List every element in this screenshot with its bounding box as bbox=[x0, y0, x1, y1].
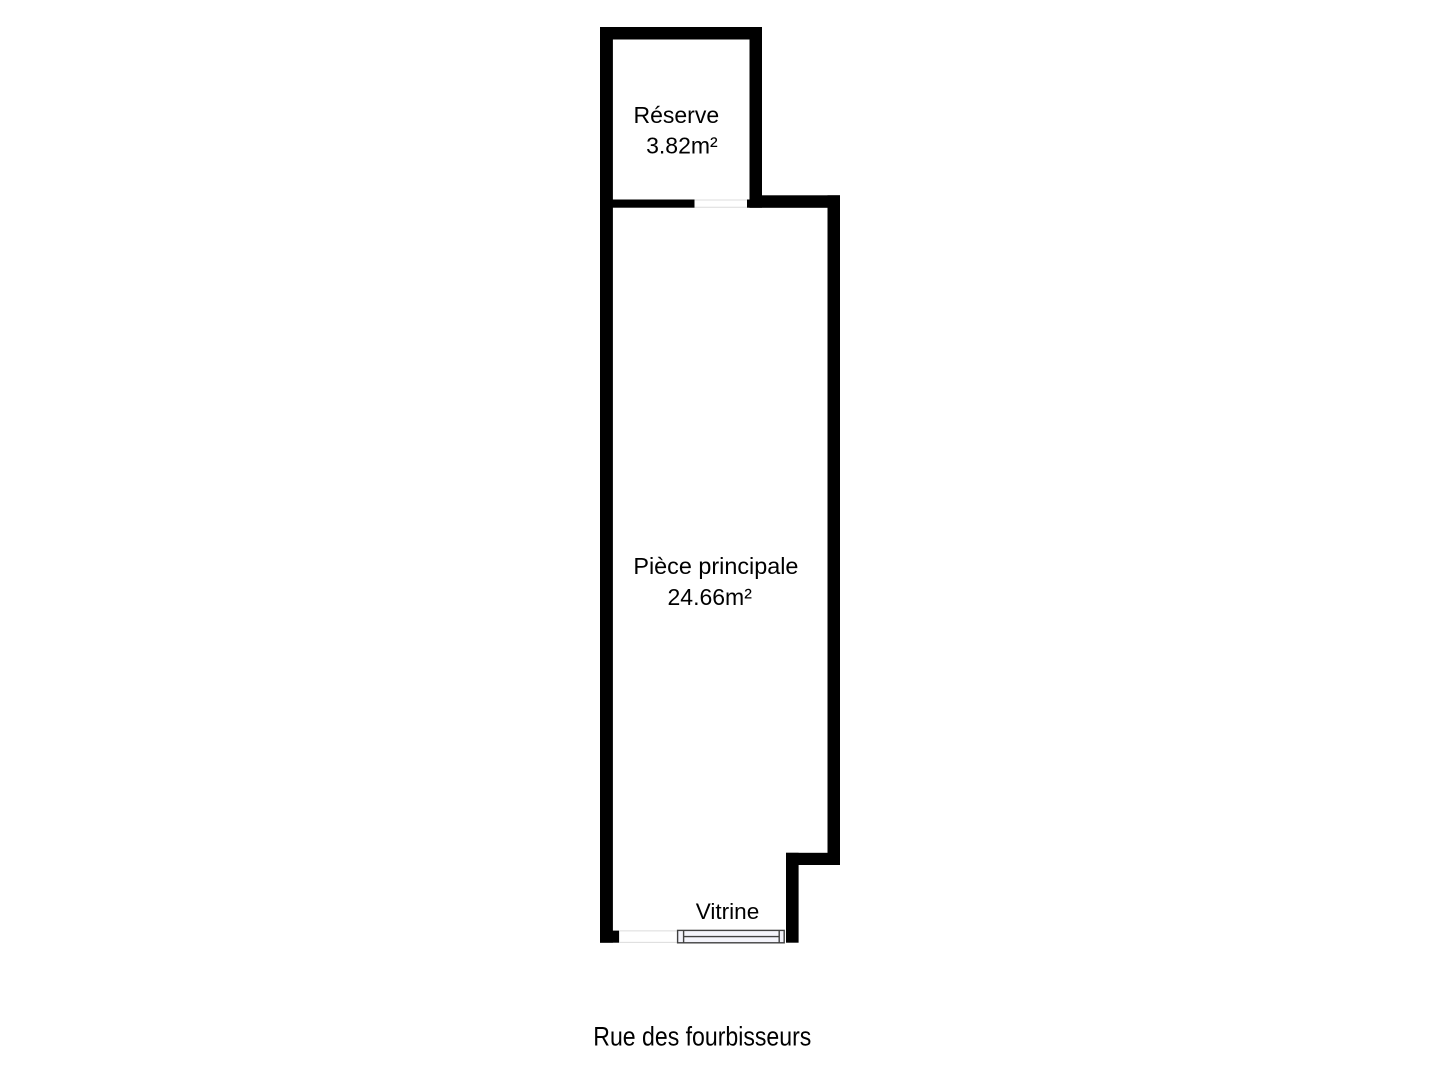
svg-text:Pièce principale: Pièce principale bbox=[633, 553, 798, 579]
svg-text:24.66m²: 24.66m² bbox=[668, 584, 753, 610]
svg-text:Vitrine: Vitrine bbox=[696, 899, 760, 924]
svg-text:Réserve: Réserve bbox=[633, 102, 719, 128]
svg-text:3.82m²: 3.82m² bbox=[646, 132, 718, 158]
svg-text:Rue des fourbisseurs: Rue des fourbisseurs bbox=[593, 1021, 811, 1051]
